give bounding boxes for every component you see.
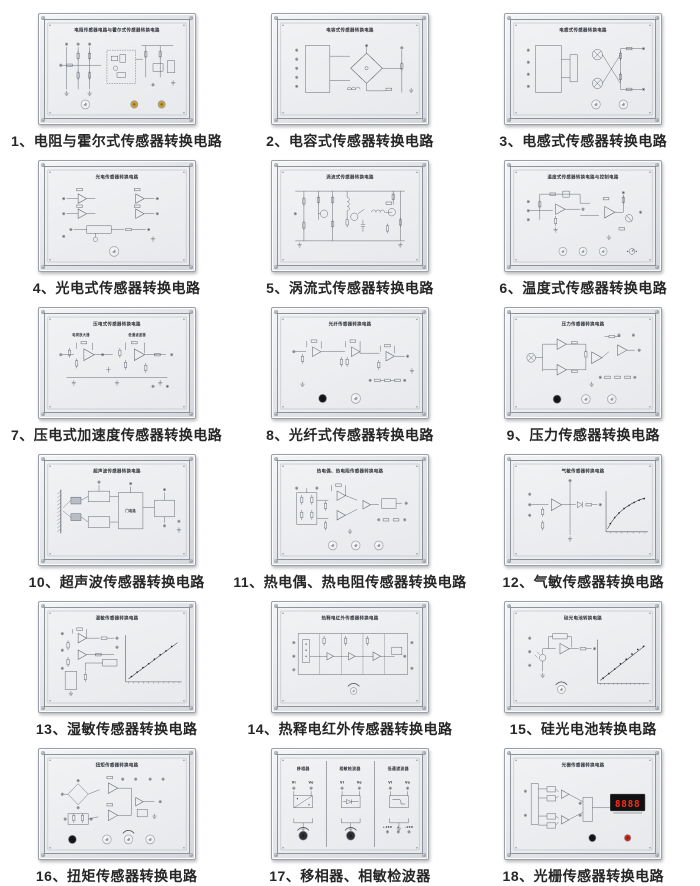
panel-caption: 18、光栅传感器转换电路 (503, 866, 665, 886)
catalog-item: 热释电红外传感器转换电路14、热释电红外传感器转换电路 (233, 592, 466, 739)
catalog-item: 电感式传感器转换电路3、电感式传感器转换电路 (467, 4, 700, 151)
panel-caption: 8、光纤式传感器转换电路 (266, 425, 434, 445)
catalog-item: 温度式传感器转换电路与控制电路6、温度式传感器转换电路 (467, 151, 700, 298)
circuit-diagram: 硅光电池转换电路 (511, 608, 655, 706)
circuit-diagram: 压力传感器转换电路 (511, 314, 655, 412)
svg-text:相敏检波器: 相敏检波器 (339, 765, 361, 771)
panel-plate: 涡流式传感器转换电路 (277, 166, 423, 266)
panel-plate: 硅光电池转换电路 (510, 607, 656, 707)
svg-text:⊥: ⊥ (397, 825, 400, 829)
svg-text:低通滤波器: 低通滤波器 (127, 332, 146, 337)
panel-plate: 超声波传感器转换电路门电路 (44, 460, 190, 560)
svg-text:Vo: Vo (357, 781, 363, 785)
catalog-item: 湿敏传感器转换电路13、湿敏传感器转换电路 (0, 592, 233, 739)
panel-plate: 气敏传感器转换电路 (510, 460, 656, 560)
instrument-panel: 硅光电池转换电路 (504, 601, 662, 713)
catalog-item: 移相器相敏检波器低通滤波器ViVoViVoViVo+15V⊥-15V17、移相器… (233, 739, 466, 886)
circuit-diagram: 电容式传感器转换电路 (278, 20, 422, 118)
panel-plate: 温度式传感器转换电路与控制电路 (510, 166, 656, 266)
instrument-panel: 电阻传感器电路与霍尔式传感器转换电路 (38, 13, 196, 125)
circuit-diagram: 涡流式传感器转换电路 (278, 167, 422, 265)
circuit-diagram: 移相器相敏检波器低通滤波器ViVoViVoViVo+15V⊥-15V (278, 755, 422, 853)
svg-text:涡流式传感器转换电路: 涡流式传感器转换电路 (326, 173, 374, 180)
panel-caption: 3、电感式传感器转换电路 (499, 131, 667, 151)
svg-text:-15V: -15V (405, 825, 414, 829)
instrument-panel: 电感式传感器转换电路 (504, 13, 662, 125)
panel-caption: 12、气敏传感器转换电路 (503, 572, 665, 592)
svg-text:光纤传感器转换电路: 光纤传感器转换电路 (328, 320, 372, 327)
panel-caption: 15、硅光电池转换电路 (510, 719, 657, 739)
circuit-diagram: 电阻传感器电路与霍尔式传感器转换电路 (45, 20, 189, 118)
panel-plate: 光电传感器转换电路 (44, 166, 190, 266)
circuit-diagram: 超声波传感器转换电路门电路 (45, 461, 189, 559)
svg-text:压力传感器转换电路: 压力传感器转换电路 (562, 320, 605, 327)
panel-plate: 电感式传感器转换电路 (510, 19, 656, 119)
circuit-diagram: 扭矩传感器转换电路 (45, 755, 189, 853)
circuit-diagram: 电感式传感器转换电路 (511, 20, 655, 118)
instrument-panel: 光栅传感器转换电路8888 (504, 748, 662, 860)
svg-text:+15V: +15V (383, 825, 393, 829)
circuit-diagram: 湿敏传感器转换电路 (45, 608, 189, 706)
catalog-item: 电阻传感器电路与霍尔式传感器转换电路1、电阻与霍尔式传感器转换电路 (0, 4, 233, 151)
instrument-panel: 热释电红外传感器转换电路 (271, 601, 429, 713)
catalog-item: 光电传感器转换电路4、光电式传感器转换电路 (0, 151, 233, 298)
circuit-diagram: 压电式传感器转换电路电荷放大器低通滤波器 (45, 314, 189, 412)
panel-plate: 光栅传感器转换电路8888 (510, 754, 656, 854)
catalog-item: 涡流式传感器转换电路5、涡流式传感器转换电路 (233, 151, 466, 298)
svg-text:电荷放大器: 电荷放大器 (72, 332, 90, 337)
catalog-item: 气敏传感器转换电路12、气敏传感器转换电路 (467, 445, 700, 592)
svg-text:门电路: 门电路 (125, 508, 136, 513)
svg-text:Vi: Vi (292, 781, 296, 785)
svg-text:8888: 8888 (615, 799, 640, 810)
panel-plate: 电容式传感器转换电路 (277, 19, 423, 119)
svg-text:光栅传感器转换电路: 光栅传感器转换电路 (561, 761, 605, 768)
catalog-item: 压电式传感器转换电路电荷放大器低通滤波器7、压电式加速度传感器转换电路 (0, 298, 233, 445)
panel-plate: 热电偶、热电阻传感器转换电路 (277, 460, 423, 560)
panel-caption: 16、扭矩传感器转换电路 (36, 866, 198, 886)
panel-caption: 14、热释电红外传感器转换电路 (247, 719, 452, 739)
panel-plate: 移相器相敏检波器低通滤波器ViVoViVoViVo+15V⊥-15V (277, 754, 423, 854)
panel-caption: 6、温度式传感器转换电路 (499, 278, 667, 298)
panel-caption: 17、移相器、相敏检波器 (269, 866, 431, 886)
circuit-diagram: 光纤传感器转换电路 (278, 314, 422, 412)
catalog-item: 硅光电池转换电路15、硅光电池转换电路 (467, 592, 700, 739)
svg-text:移相器: 移相器 (297, 765, 310, 771)
svg-text:扭矩传感器转换电路: 扭矩传感器转换电路 (95, 761, 138, 768)
panel-caption: 7、压电式加速度传感器转换电路 (11, 425, 222, 445)
panel-caption: 11、热电偶、热电阻传感器转换电路 (233, 572, 466, 592)
catalog-item: 光纤传感器转换电路8、光纤式传感器转换电路 (233, 298, 466, 445)
panel-plate: 扭矩传感器转换电路 (44, 754, 190, 854)
catalog-item: 超声波传感器转换电路门电路10、超声波传感器转换电路 (0, 445, 233, 592)
instrument-panel: 湿敏传感器转换电路 (38, 601, 196, 713)
catalog-item: 压力传感器转换电路9、压力传感器转换电路 (467, 298, 700, 445)
instrument-panel: 压力传感器转换电路 (504, 307, 662, 419)
instrument-panel: 涡流式传感器转换电路 (271, 160, 429, 272)
panel-plate: 压电式传感器转换电路电荷放大器低通滤波器 (44, 313, 190, 413)
circuit-diagram: 热电偶、热电阻传感器转换电路 (278, 461, 422, 559)
svg-text:电感式传感器转换电路: 电感式传感器转换电路 (560, 26, 608, 33)
panel-caption: 10、超声波传感器转换电路 (29, 572, 205, 592)
svg-text:热电偶、热电阻传感器转换电路: 热电偶、热电阻传感器转换电路 (317, 467, 384, 474)
svg-text:气敏传感器转换电路: 气敏传感器转换电路 (562, 467, 605, 474)
catalog-item: 光栅传感器转换电路888818、光栅传感器转换电路 (467, 739, 700, 886)
panel-plate: 电阻传感器电路与霍尔式传感器转换电路 (44, 19, 190, 119)
svg-text:Vi: Vi (340, 781, 344, 785)
instrument-panel: 移相器相敏检波器低通滤波器ViVoViVoViVo+15V⊥-15V (271, 748, 429, 860)
circuit-diagram: 气敏传感器转换电路 (511, 461, 655, 559)
svg-text:热释电红外传感器转换电路: 热释电红外传感器转换电路 (322, 614, 379, 621)
panel-caption: 13、湿敏传感器转换电路 (36, 719, 198, 739)
catalog-item: 电容式传感器转换电路2、电容式传感器转换电路 (233, 4, 466, 151)
catalog-item: 扭矩传感器转换电路16、扭矩传感器转换电路 (0, 739, 233, 886)
instrument-panel: 温度式传感器转换电路与控制电路 (504, 160, 662, 272)
svg-text:压电式传感器转换电路: 压电式传感器转换电路 (93, 320, 141, 327)
svg-text:Vi: Vi (388, 781, 392, 785)
panel-plate: 湿敏传感器转换电路 (44, 607, 190, 707)
svg-text:电容式传感器转换电路: 电容式传感器转换电路 (326, 26, 374, 33)
svg-text:硅光电池转换电路: 硅光电池转换电路 (564, 614, 602, 621)
svg-text:超声波传感器转换电路: 超声波传感器转换电路 (92, 467, 141, 474)
panel-plate: 压力传感器转换电路 (510, 313, 656, 413)
panel-plate: 热释电红外传感器转换电路 (277, 607, 423, 707)
instrument-panel: 电容式传感器转换电路 (271, 13, 429, 125)
instrument-panel: 气敏传感器转换电路 (504, 454, 662, 566)
svg-text:Vo: Vo (405, 781, 411, 785)
svg-text:电阻传感器电路与霍尔式传感器转换电路: 电阻传感器电路与霍尔式传感器转换电路 (74, 26, 160, 33)
instrument-panel: 超声波传感器转换电路门电路 (38, 454, 196, 566)
circuit-diagram: 光电传感器转换电路 (45, 167, 189, 265)
catalog-item: 热电偶、热电阻传感器转换电路11、热电偶、热电阻传感器转换电路 (233, 445, 466, 592)
circuit-diagram: 光栅传感器转换电路8888 (511, 755, 655, 853)
panel-caption: 1、电阻与霍尔式传感器转换电路 (11, 131, 222, 151)
instrument-panel: 压电式传感器转换电路电荷放大器低通滤波器 (38, 307, 196, 419)
panel-plate: 光纤传感器转换电路 (277, 313, 423, 413)
circuit-diagram: 温度式传感器转换电路与控制电路 (511, 167, 655, 265)
svg-text:光电传感器转换电路: 光电传感器转换电路 (94, 173, 138, 180)
panel-caption: 5、涡流式传感器转换电路 (266, 278, 434, 298)
circuit-diagram: 热释电红外传感器转换电路 (278, 608, 422, 706)
instrument-panel: 热电偶、热电阻传感器转换电路 (271, 454, 429, 566)
svg-text:低通滤波器: 低通滤波器 (387, 765, 410, 771)
panel-caption: 9、压力传感器转换电路 (507, 425, 660, 445)
instrument-panel: 光纤传感器转换电路 (271, 307, 429, 419)
catalog-grid: 电阻传感器电路与霍尔式传感器转换电路1、电阻与霍尔式传感器转换电路电容式传感器转… (0, 0, 700, 880)
svg-text:湿敏传感器转换电路: 湿敏传感器转换电路 (95, 614, 138, 621)
svg-text:温度式传感器转换电路与控制电路: 温度式传感器转换电路与控制电路 (548, 173, 619, 180)
instrument-panel: 光电传感器转换电路 (38, 160, 196, 272)
panel-caption: 4、光电式传感器转换电路 (33, 278, 201, 298)
instrument-panel: 扭矩传感器转换电路 (38, 748, 196, 860)
panel-caption: 2、电容式传感器转换电路 (266, 131, 434, 151)
svg-text:Vo: Vo (309, 781, 315, 785)
